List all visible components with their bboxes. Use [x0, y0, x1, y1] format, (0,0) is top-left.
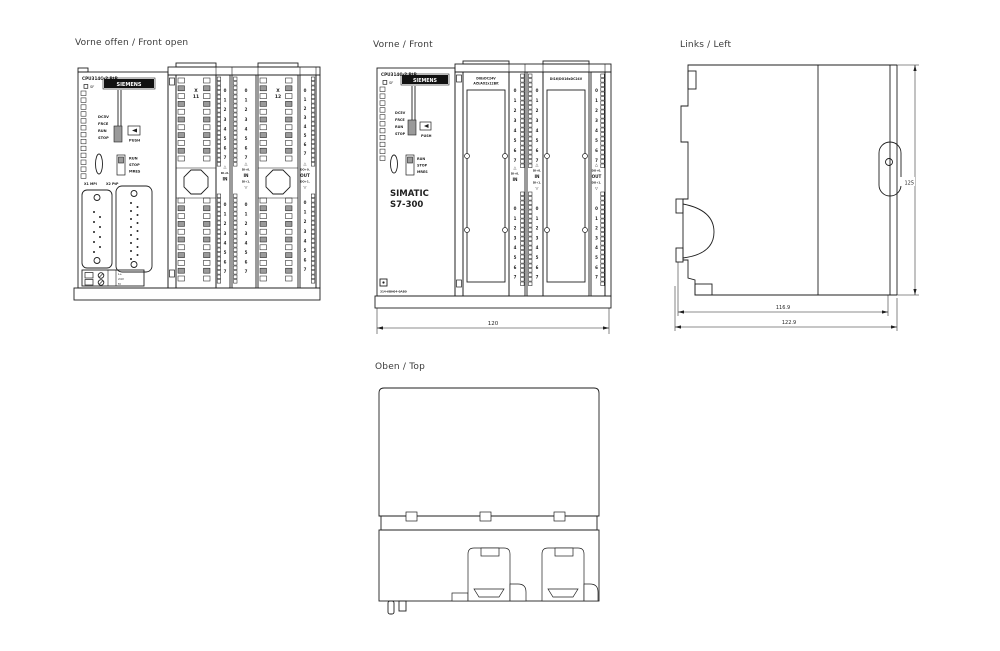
svg-text:7: 7 — [224, 155, 227, 160]
svg-text:2: 2 — [536, 226, 539, 231]
svg-text:5: 5 — [595, 138, 598, 143]
door2-label: DI16/DO16xDC24V — [550, 77, 583, 81]
svg-text:0: 0 — [245, 88, 248, 93]
svg-text:2: 2 — [304, 219, 307, 224]
dimension-width: 120 — [377, 308, 609, 334]
top-rail — [168, 63, 320, 75]
svg-text:6: 6 — [536, 148, 539, 153]
svg-text:3: 3 — [245, 231, 248, 236]
svg-text:DO+0.: DO+0. — [300, 168, 310, 172]
sf-led-label: SF — [90, 85, 94, 89]
svg-text:4: 4 — [514, 128, 517, 133]
top-rail — [455, 61, 611, 72]
svg-text:DI+0.: DI+0. — [221, 171, 229, 175]
status-led-labels: DC5V FRCE RUN STOP — [98, 115, 109, 140]
svg-text:DI+1.: DI+1. — [242, 180, 250, 184]
svg-text:0: 0 — [514, 88, 517, 93]
order-number: 314-6BH04-0AB0 — [380, 290, 407, 294]
svg-text:7: 7 — [245, 155, 248, 160]
svg-text:FRCE: FRCE — [98, 122, 109, 126]
svg-text:12: 12 — [275, 94, 281, 100]
svg-text:4: 4 — [304, 238, 307, 243]
svg-text:DC5V: DC5V — [98, 115, 109, 119]
front-open-drawing: CPU314C-2 PtP SF SIEMENS DC5V FRCE RUN S… — [72, 62, 324, 304]
svg-text:11: 11 — [193, 94, 199, 100]
ptp-connector[interactable] — [116, 186, 152, 272]
svg-text:5: 5 — [536, 255, 539, 260]
svg-text:5: 5 — [224, 136, 227, 141]
svg-text:1: 1 — [245, 98, 248, 103]
terminal-strip — [81, 91, 86, 178]
svg-text:3: 3 — [224, 117, 227, 122]
view-label-front-open: Vorne offen / Front open — [75, 38, 188, 48]
dim-125: 125 — [904, 181, 914, 187]
dimension-height: 125 — [897, 65, 919, 295]
svg-text:STOP: STOP — [98, 136, 109, 140]
siemens-logo-text: SIEMENS — [116, 82, 141, 88]
svg-text:2: 2 — [595, 108, 598, 113]
svg-text:4: 4 — [224, 240, 227, 245]
dim-122-9: 122.9 — [782, 320, 796, 326]
svg-text:MRES: MRES — [417, 170, 428, 174]
svg-text:0: 0 — [536, 206, 539, 211]
svg-text:DC5V: DC5V — [395, 111, 406, 115]
svg-text:6: 6 — [224, 260, 227, 265]
svg-text:DO+0.: DO+0. — [592, 169, 602, 173]
eject-flag-icon — [128, 126, 140, 135]
svg-text:5: 5 — [304, 248, 307, 253]
svg-text:FRCE: FRCE — [395, 118, 405, 122]
svg-text:6: 6 — [595, 265, 598, 270]
cpu-module-open: CPU314C-2 PtP SF SIEMENS DC5V FRCE RUN S… — [78, 68, 168, 288]
svg-text:5: 5 — [245, 250, 248, 255]
mounting-hole — [266, 170, 290, 194]
battery-slot — [391, 155, 398, 173]
svg-text:0: 0 — [595, 206, 598, 211]
svg-text:STOP: STOP — [417, 164, 428, 168]
dimension-depth-inner: 116.9 — [678, 262, 888, 316]
hinge-column — [168, 75, 176, 288]
svg-text:DO+1.: DO+1. — [300, 180, 310, 184]
svg-text:4: 4 — [595, 128, 598, 133]
svg-text:5: 5 — [304, 133, 307, 138]
svg-text:4: 4 — [245, 240, 248, 245]
simatic-label: SIMATIC — [390, 189, 429, 199]
side-profile — [676, 65, 901, 295]
front-drawing: CPU314C-2 PtP SF SIEMENS DC5V FRCE RUN S… — [368, 60, 620, 342]
push-label: PUSH — [129, 139, 140, 143]
svg-text:6: 6 — [245, 260, 248, 265]
svg-text:4: 4 — [245, 126, 248, 131]
svg-text:4: 4 — [536, 245, 539, 250]
svg-text:5: 5 — [595, 255, 598, 260]
svg-text:5: 5 — [245, 136, 248, 141]
svg-text:4: 4 — [536, 128, 539, 133]
bottom-rail — [74, 288, 320, 300]
view-label-front: Vorne / Front — [373, 40, 433, 50]
svg-text:2: 2 — [514, 108, 517, 113]
svg-text:3: 3 — [595, 118, 598, 123]
bottom-pins — [388, 601, 406, 614]
terminal-module-x11: X 11 — [176, 75, 216, 288]
svg-text:5: 5 — [514, 255, 517, 260]
left-side-drawing: 116.9 122.9 125 — [662, 58, 926, 346]
svg-text:2: 2 — [224, 107, 227, 112]
svg-text:3: 3 — [514, 235, 517, 240]
mode-switch[interactable]: RUN STOP MRES — [117, 155, 141, 175]
svg-text:3: 3 — [514, 118, 517, 123]
front-door-2[interactable]: DI16/DO16xDC24V — [543, 72, 589, 296]
svg-text:OUT: OUT — [300, 173, 310, 178]
svg-text:1: 1 — [224, 212, 227, 217]
terminal-module-x12: X 12 — [258, 75, 298, 288]
svg-text:0: 0 — [224, 88, 227, 93]
svg-text:1: 1 — [536, 98, 539, 103]
svg-text:DI+0.: DI+0. — [511, 172, 519, 176]
svg-text:RUN: RUN — [129, 157, 138, 161]
bottom-rail — [375, 296, 611, 308]
svg-text:3: 3 — [536, 235, 539, 240]
svg-text:7: 7 — [224, 269, 227, 274]
svg-text:IN: IN — [512, 177, 518, 182]
svg-text:△: △ — [536, 162, 539, 167]
svg-text:OUT: OUT — [592, 174, 602, 179]
led-strip-in-2: 01234567 △ DI+0. IN DI+1. ▽ 01234567 — [527, 72, 543, 296]
svg-text:3: 3 — [304, 115, 307, 120]
mounting-hole — [184, 170, 208, 194]
view-label-left: Links / Left — [680, 40, 731, 50]
svg-text:AI5/AO2x12Bit: AI5/AO2x12Bit — [473, 82, 499, 86]
svg-text:6: 6 — [224, 146, 227, 151]
svg-text:IN: IN — [534, 174, 540, 179]
svg-text:2: 2 — [245, 107, 248, 112]
svg-text:△: △ — [224, 164, 227, 169]
svg-text:1: 1 — [245, 212, 248, 217]
s7-300-label: S7-300 — [390, 200, 423, 210]
svg-text:1: 1 — [536, 216, 539, 221]
card-slot-slider[interactable] — [114, 90, 122, 142]
svg-text:0: 0 — [304, 200, 307, 205]
svg-text:2: 2 — [595, 226, 598, 231]
svg-text:▽: ▽ — [595, 186, 598, 191]
svg-text:IN: IN — [243, 173, 249, 178]
svg-text:6: 6 — [304, 258, 307, 263]
led-strip-out: 01234567 △ DO+0. OUT DO+1. ▽ 01234567 — [300, 75, 316, 288]
svg-text:▽: ▽ — [245, 185, 248, 190]
edge-column — [605, 72, 611, 296]
svg-text:5: 5 — [224, 250, 227, 255]
svg-text:3: 3 — [224, 231, 227, 236]
siemens-logo-text: SIEMENS — [413, 78, 438, 84]
status-led-labels: DC5V FRCE RUN STOP — [395, 111, 406, 136]
x11-label: X — [194, 88, 198, 94]
svg-text:DI+0.: DI+0. — [242, 168, 250, 172]
svg-text:4: 4 — [304, 124, 307, 129]
svg-text:1: 1 — [224, 98, 227, 103]
svg-text:4: 4 — [514, 245, 517, 250]
svg-text:MRES: MRES — [129, 170, 141, 174]
svg-text:1: 1 — [514, 98, 517, 103]
svg-text:△: △ — [514, 165, 517, 170]
push-label: PUSH — [421, 134, 432, 138]
svg-text:0: 0 — [304, 88, 307, 93]
svg-text:7: 7 — [595, 275, 598, 280]
svg-text:1: 1 — [514, 216, 517, 221]
svg-text:2: 2 — [514, 226, 517, 231]
svg-text:0: 0 — [514, 206, 517, 211]
port-x1-label: X1 MPI — [84, 182, 97, 186]
svg-text:0: 0 — [595, 88, 598, 93]
sf-led-label: SF — [389, 81, 393, 85]
svg-text:M: M — [118, 282, 121, 286]
svg-text:6: 6 — [304, 142, 307, 147]
svg-text:4: 4 — [224, 126, 227, 131]
svg-text:STOP: STOP — [395, 132, 406, 136]
svg-text:6: 6 — [514, 148, 517, 153]
led-strip-in-1: 01234567 △ DI+0. IN 01234567 — [216, 75, 230, 288]
svg-text:4: 4 — [595, 245, 598, 250]
svg-text:7: 7 — [245, 269, 248, 274]
svg-text:1: 1 — [595, 98, 598, 103]
svg-text:7: 7 — [304, 267, 307, 272]
svg-text:L+: L+ — [118, 272, 123, 276]
svg-text:6: 6 — [514, 265, 517, 270]
svg-text:3: 3 — [245, 117, 248, 122]
hinge-column — [455, 72, 463, 296]
svg-text:2: 2 — [245, 221, 248, 226]
led-strip-in-2: 01234567 △ DI+0. IN DI+1. ▽ 01234567 — [232, 75, 256, 288]
svg-text:6: 6 — [245, 146, 248, 151]
door1-label: DI8xDC24V — [476, 77, 496, 81]
eject-flag-icon — [420, 122, 431, 130]
svg-text:7: 7 — [304, 151, 307, 156]
top-drawing — [368, 358, 608, 620]
dim-116-9: 116.9 — [776, 305, 790, 311]
svg-text:△: △ — [245, 161, 248, 166]
svg-text:2: 2 — [224, 221, 227, 226]
svg-text:0: 0 — [245, 202, 248, 207]
mode-switch[interactable]: RUN STOP MRES — [406, 155, 428, 175]
svg-text:2: 2 — [304, 106, 307, 111]
svg-text:RUN: RUN — [395, 125, 403, 129]
svg-text:RUN: RUN — [417, 157, 425, 161]
svg-text:6: 6 — [595, 148, 598, 153]
port-x2-label: X2 PtP — [106, 182, 119, 186]
svg-text:7: 7 — [536, 275, 539, 280]
mpi-connector[interactable] — [82, 190, 112, 268]
dim-120: 120 — [488, 321, 499, 327]
svg-text:1: 1 — [304, 210, 307, 215]
svg-text:▽: ▽ — [536, 186, 539, 191]
diagram-canvas: Vorne offen / Front open Vorne / Front L… — [0, 0, 1000, 651]
svg-text:△: △ — [595, 162, 598, 167]
top-connector-shell-2 — [542, 548, 598, 601]
led-strip-in-1: 01234567 △ DI+0. IN 01234567 — [509, 72, 525, 296]
svg-text:1: 1 — [304, 97, 307, 102]
svg-text:DI+1.: DI+1. — [533, 181, 541, 185]
front-door-1[interactable]: DI8xDC24V AI5/AO2x12Bit — [463, 72, 509, 296]
svg-text:24V: 24V — [118, 277, 125, 281]
svg-text:7: 7 — [514, 158, 517, 163]
svg-text:DO+1.: DO+1. — [592, 181, 602, 185]
terminal-strip — [380, 87, 385, 161]
svg-text:RUN: RUN — [98, 129, 107, 133]
svg-text:0: 0 — [224, 202, 227, 207]
svg-text:IN: IN — [222, 177, 228, 182]
svg-text:2: 2 — [536, 108, 539, 113]
svg-text:0: 0 — [536, 88, 539, 93]
edge-column — [316, 75, 320, 288]
top-connector-shell-1 — [452, 548, 526, 601]
svg-text:3: 3 — [304, 229, 307, 234]
svg-text:△: △ — [304, 161, 307, 166]
svg-text:1: 1 — [595, 216, 598, 221]
svg-text:DI+0.: DI+0. — [533, 169, 541, 173]
svg-text:▽: ▽ — [304, 185, 307, 190]
svg-text:STOP: STOP — [129, 163, 140, 167]
svg-text:5: 5 — [536, 138, 539, 143]
svg-text:5: 5 — [514, 138, 517, 143]
svg-text:3: 3 — [595, 235, 598, 240]
card-slot-slider[interactable] — [408, 86, 416, 135]
svg-text:6: 6 — [536, 265, 539, 270]
x12-label: X — [276, 88, 280, 94]
svg-text:3: 3 — [536, 118, 539, 123]
svg-text:7: 7 — [514, 275, 517, 280]
battery-slot — [96, 154, 103, 174]
cpu-module: CPU314C-2 PtP SF SIEMENS DC5V FRCE RUN S… — [377, 68, 455, 296]
led-strip-out: 01234567 △ DO+0. OUT DO+1. ▽ 01234567 — [591, 72, 605, 296]
